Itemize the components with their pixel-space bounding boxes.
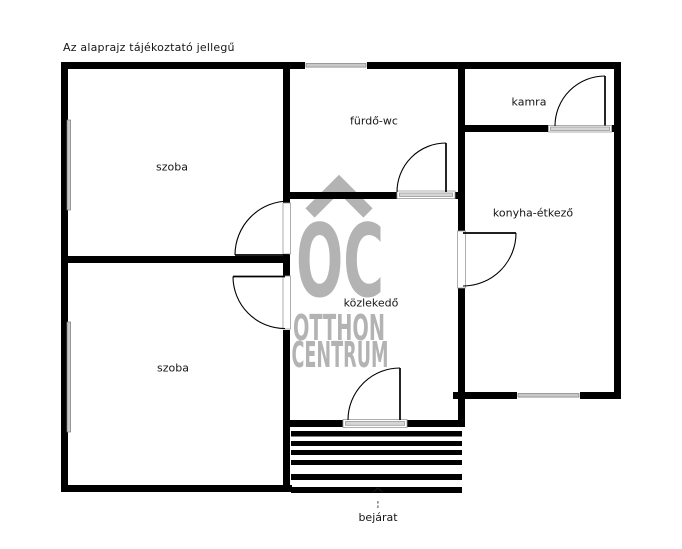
kitchen-door [463, 233, 516, 286]
szoba-top-left-window [67, 120, 71, 210]
room-label-kozlekedo: közlekedő [344, 297, 399, 310]
szoba-bottom-door-opening [283, 276, 291, 329]
stair-step [291, 460, 462, 465]
room-label-szoba-bottom: szoba [157, 362, 189, 375]
wall [61, 62, 305, 69]
room-label-kamra: kamra [512, 96, 547, 109]
bathroom-door [397, 143, 446, 192]
wall [283, 62, 290, 203]
kitchen-bottom-window [517, 392, 580, 400]
wall [283, 254, 290, 276]
wall [61, 485, 292, 492]
szoba-top-door [235, 201, 289, 255]
entrance-arrow-shaft [378, 501, 379, 508]
stair-step [291, 450, 462, 455]
wall [283, 192, 397, 199]
pantry-door-sill [551, 127, 610, 131]
pantry-door [555, 76, 605, 126]
watermark-line2: CENTRUM [292, 335, 389, 376]
wall [612, 125, 621, 132]
entrance-marker: ^ bejárat [358, 490, 397, 524]
watermark-logo: OC OTTHON CENTRUM [292, 184, 389, 376]
room-label-szoba-top: szoba [156, 161, 188, 174]
bathroom-door-sill [400, 193, 453, 197]
stair-step [291, 441, 462, 446]
wall [453, 392, 517, 399]
wall [614, 62, 621, 399]
entrance-door-sill [346, 422, 405, 426]
wall [407, 420, 465, 427]
floorplan-drawing: OC OTTHON CENTRUM [0, 0, 682, 549]
room-label-konyha-etkezo: konyha-étkező [493, 207, 573, 220]
floorplan-canvas: Az alaprajz tájékoztató jellegű OC OTTHO… [0, 0, 682, 549]
entrance-label: bejárat [358, 511, 397, 524]
szoba-top-door-opening [283, 203, 291, 254]
wall [580, 392, 621, 399]
szoba-bottom-left-window [67, 322, 71, 432]
kitchen-door-threshold [458, 231, 466, 288]
stair-step [291, 474, 462, 480]
entrance-stairs [291, 431, 462, 493]
stair-step [291, 431, 462, 437]
wall [283, 330, 290, 492]
wall [61, 256, 290, 263]
wall [458, 125, 548, 132]
wall [367, 62, 621, 69]
entrance-arrow-icon: ^ [371, 490, 385, 501]
wall [283, 420, 343, 427]
bathroom-top-window [305, 62, 367, 70]
wall [458, 62, 465, 231]
wall [458, 288, 465, 423]
szoba-bottom-door [233, 277, 285, 329]
room-label-furdo-wc: fürdő-wc [350, 115, 398, 128]
